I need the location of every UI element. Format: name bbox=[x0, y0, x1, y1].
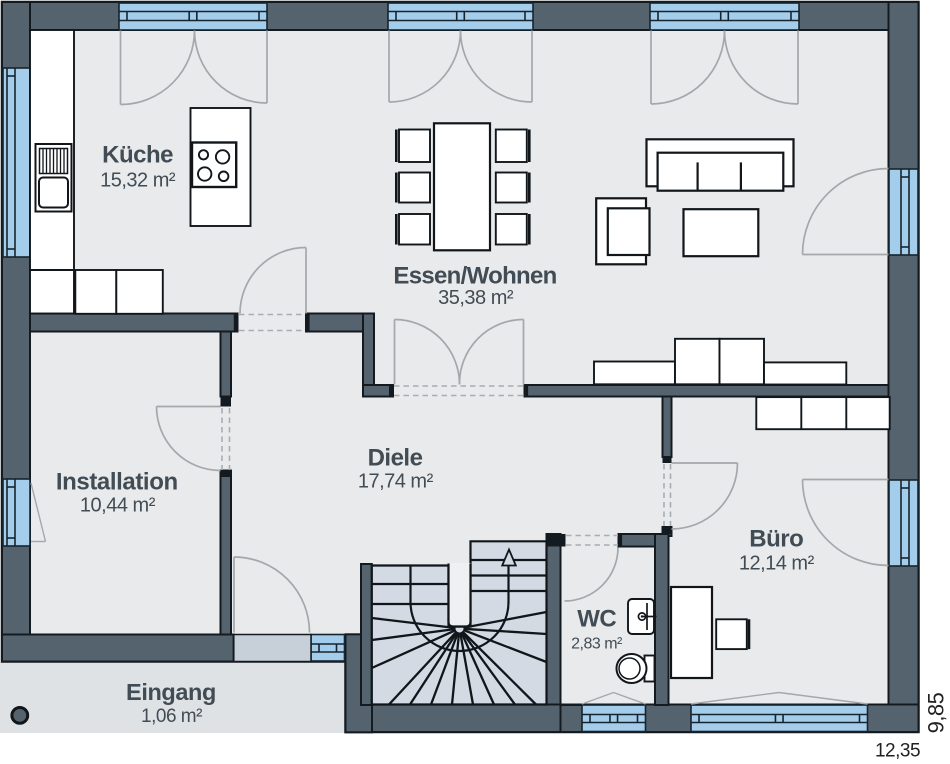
svg-text:15,32 m²: 15,32 m² bbox=[100, 170, 176, 192]
svg-text:35,38 m²: 35,38 m² bbox=[438, 287, 514, 309]
svg-text:12,35: 12,35 bbox=[875, 741, 920, 762]
svg-text:17,74 m²: 17,74 m² bbox=[358, 471, 434, 493]
svg-text:Büro: Büro bbox=[749, 526, 803, 553]
svg-text:9,85: 9,85 bbox=[924, 692, 949, 733]
svg-text:1,06 m²: 1,06 m² bbox=[141, 706, 202, 727]
svg-text:10,44 m²: 10,44 m² bbox=[80, 495, 156, 517]
svg-text:WC: WC bbox=[577, 606, 616, 633]
svg-text:Essen/Wohnen: Essen/Wohnen bbox=[393, 263, 556, 290]
svg-text:Eingang: Eingang bbox=[126, 679, 216, 705]
svg-text:Küche: Küche bbox=[102, 142, 173, 169]
svg-text:Diele: Diele bbox=[368, 445, 423, 472]
svg-text:2,83 m²: 2,83 m² bbox=[571, 636, 623, 653]
svg-text:Installation: Installation bbox=[56, 469, 178, 496]
svg-text:12,14 m²: 12,14 m² bbox=[739, 553, 815, 575]
